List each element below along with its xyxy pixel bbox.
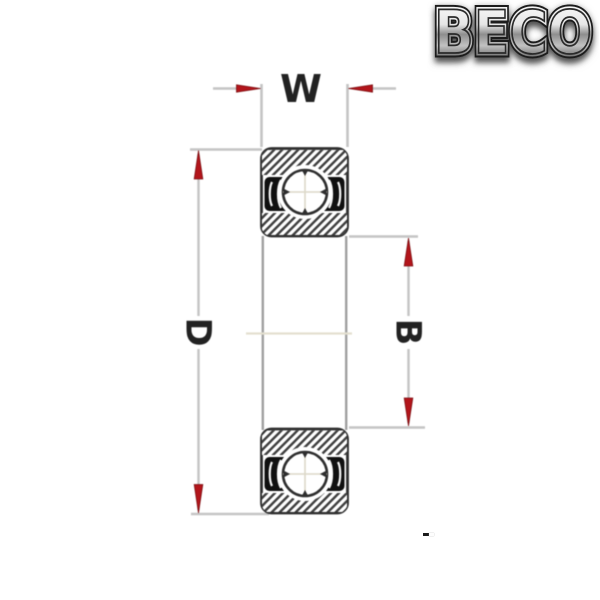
b-arrow-down-icon — [404, 398, 413, 426]
dimension-bore: B — [349, 237, 428, 428]
w-arrow-right-icon — [349, 85, 373, 92]
d-label: D — [178, 317, 218, 346]
artifact-dash — [423, 533, 434, 536]
ring-section-bottom — [262, 429, 348, 513]
w-label: W — [280, 67, 322, 111]
bearing-diagram: D W B — [0, 0, 600, 600]
b-label: B — [388, 319, 428, 346]
w-arrow-left-icon — [237, 85, 261, 92]
bearing-body — [246, 149, 352, 514]
b-arrow-up-icon — [404, 238, 413, 266]
dimension-width: W — [213, 67, 396, 147]
canvas: BECO BECO BECO D — [0, 0, 600, 600]
d-arrow-up-icon — [194, 151, 203, 180]
ring-section-top — [262, 149, 348, 237]
d-arrow-down-icon — [194, 485, 203, 514]
dimension-outer-diameter: D — [178, 150, 270, 515]
